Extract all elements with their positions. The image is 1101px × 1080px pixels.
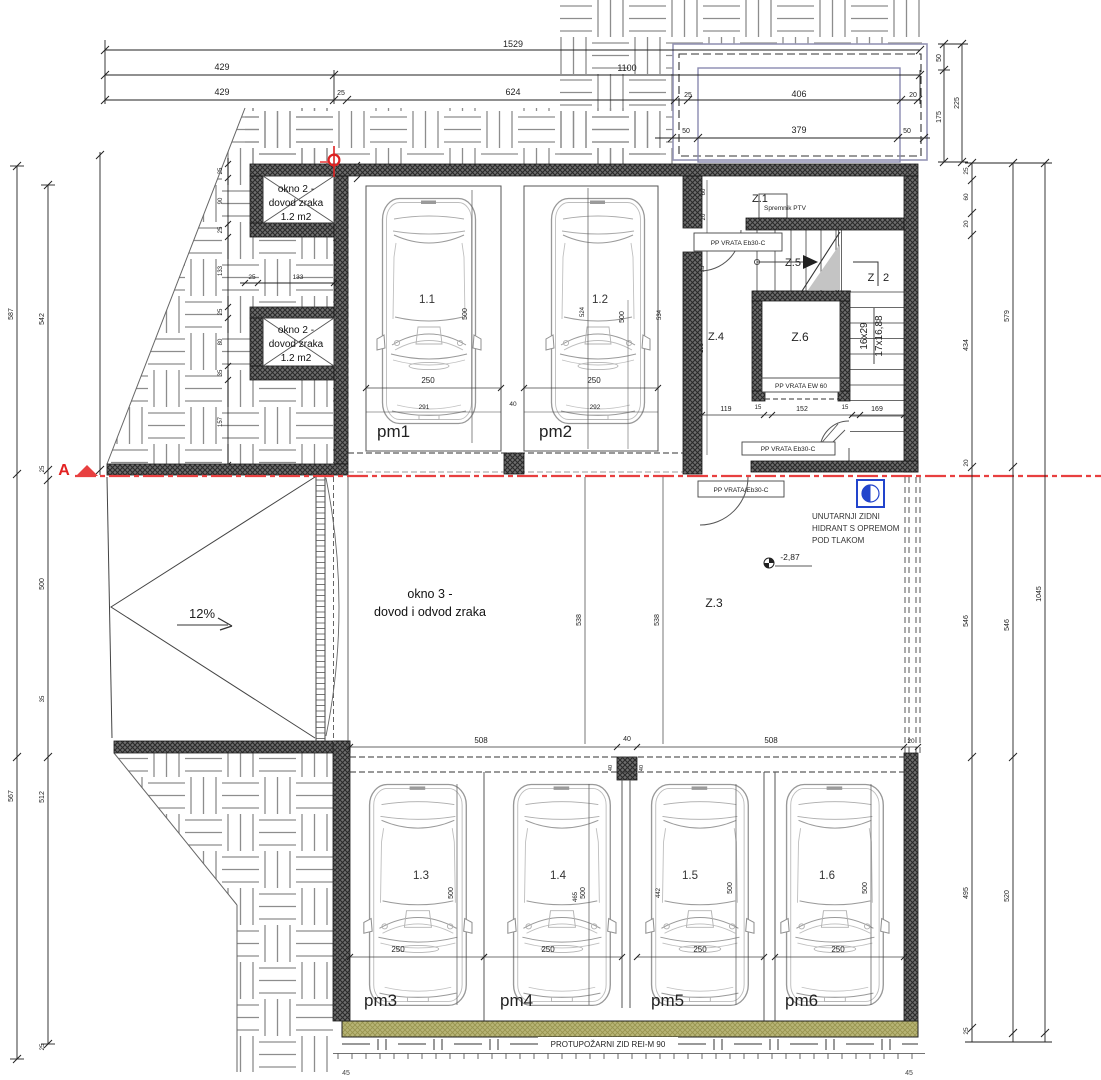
svg-text:okno 2 -: okno 2 -	[278, 184, 314, 195]
svg-text:1.3: 1.3	[413, 870, 429, 882]
svg-text:500: 500	[619, 311, 626, 323]
svg-text:250: 250	[693, 945, 707, 954]
svg-text:UNUTARNJI ZIDNI: UNUTARNJI ZIDNI	[812, 512, 880, 521]
svg-text:12%: 12%	[189, 606, 215, 621]
svg-text:500: 500	[580, 887, 587, 899]
svg-text:2: 2	[883, 272, 889, 284]
svg-text:500: 500	[862, 882, 869, 894]
svg-text:434: 434	[963, 339, 970, 351]
svg-text:60: 60	[963, 193, 970, 201]
svg-text:133: 133	[218, 265, 224, 276]
svg-text:dovod i odvod zraka: dovod i odvod zraka	[374, 605, 486, 619]
svg-text:90: 90	[218, 197, 224, 204]
svg-text:-2,87: -2,87	[780, 552, 800, 562]
svg-text:291: 291	[419, 404, 430, 411]
svg-text:Z.4: Z.4	[708, 331, 724, 343]
svg-text:Z: Z	[868, 272, 875, 284]
svg-text:25: 25	[684, 92, 692, 99]
svg-text:133: 133	[293, 274, 304, 281]
svg-text:16x29: 16x29	[859, 322, 870, 350]
svg-text:225: 225	[954, 97, 961, 109]
svg-text:Z.6: Z.6	[791, 330, 809, 344]
svg-text:25: 25	[248, 274, 256, 281]
svg-text:45: 45	[905, 1070, 913, 1077]
svg-text:379: 379	[791, 125, 806, 135]
svg-text:250: 250	[831, 945, 845, 954]
svg-text:20: 20	[963, 459, 970, 467]
svg-text:1.2 m2: 1.2 m2	[281, 353, 312, 364]
svg-text:542: 542	[39, 313, 46, 325]
svg-text:1100: 1100	[617, 63, 636, 73]
svg-text:45: 45	[342, 1070, 350, 1077]
svg-text:25: 25	[963, 1027, 970, 1035]
svg-text:1.2: 1.2	[592, 294, 608, 306]
svg-text:35: 35	[40, 695, 46, 702]
svg-text:okno 2 -: okno 2 -	[278, 325, 314, 336]
svg-text:508: 508	[474, 736, 488, 745]
svg-text:dovod zraka: dovod zraka	[269, 339, 324, 350]
svg-text:500: 500	[39, 578, 46, 590]
svg-text:25: 25	[963, 167, 970, 175]
svg-text:406: 406	[791, 89, 806, 99]
svg-text:157: 157	[218, 416, 224, 427]
svg-text:50: 50	[936, 54, 943, 62]
svg-text:1.5: 1.5	[682, 870, 698, 882]
svg-text:250: 250	[391, 945, 405, 954]
svg-text:40: 40	[608, 765, 614, 771]
svg-text:512: 512	[39, 791, 46, 803]
svg-text:500: 500	[462, 308, 469, 320]
svg-text:169: 169	[871, 406, 883, 413]
svg-text:80: 80	[218, 338, 224, 345]
svg-text:50: 50	[682, 128, 690, 135]
svg-text:534: 534	[657, 309, 663, 320]
svg-text:1045: 1045	[1036, 586, 1043, 602]
svg-text:152: 152	[796, 406, 808, 413]
svg-text:Z.1: Z.1	[752, 193, 768, 205]
svg-text:429: 429	[214, 87, 229, 97]
svg-text:17x16,88: 17x16,88	[874, 315, 885, 357]
svg-text:dovod zraka: dovod zraka	[269, 198, 324, 209]
svg-text:25: 25	[337, 90, 345, 97]
svg-text:pm1: pm1	[377, 422, 410, 441]
svg-text:25: 25	[218, 226, 224, 233]
svg-text:524: 524	[580, 306, 586, 317]
svg-text:508: 508	[764, 736, 778, 745]
svg-text:250: 250	[421, 376, 435, 385]
svg-text:567: 567	[8, 790, 15, 802]
svg-text:579: 579	[1004, 310, 1011, 322]
svg-text:500: 500	[448, 887, 455, 899]
svg-text:119: 119	[720, 406, 731, 413]
svg-text:538: 538	[576, 614, 583, 626]
svg-text:250: 250	[541, 945, 555, 954]
svg-text:538: 538	[654, 614, 661, 626]
svg-text:1.6: 1.6	[819, 870, 835, 882]
svg-text:pm3: pm3	[364, 991, 397, 1010]
svg-text:175: 175	[936, 111, 943, 123]
svg-text:POD TLAKOM: POD TLAKOM	[812, 536, 865, 545]
svg-text:520: 520	[1004, 890, 1011, 902]
svg-text:25: 25	[218, 167, 224, 174]
svg-text:20: 20	[909, 92, 917, 99]
svg-text:500: 500	[727, 882, 734, 894]
svg-text:429: 429	[214, 62, 229, 72]
svg-text:1.1: 1.1	[419, 294, 435, 306]
svg-text:25: 25	[40, 1043, 46, 1050]
svg-text:pm4: pm4	[500, 991, 533, 1010]
svg-text:624: 624	[505, 87, 520, 97]
svg-text:PP VRATA Eb30-C: PP VRATA Eb30-C	[761, 446, 816, 453]
svg-text:PP VRATA Eb30-C: PP VRATA Eb30-C	[711, 240, 766, 247]
svg-text:pm5: pm5	[651, 991, 684, 1010]
svg-text:PROTUPOŽARNI ZID REI-M 90: PROTUPOŽARNI ZID REI-M 90	[551, 1040, 666, 1049]
svg-text:587: 587	[8, 308, 15, 320]
svg-text:1.2 m2: 1.2 m2	[281, 212, 312, 223]
svg-text:35: 35	[218, 369, 224, 376]
svg-text:546: 546	[1004, 619, 1011, 631]
svg-text:Z.5: Z.5	[785, 257, 801, 269]
svg-text:250: 250	[587, 376, 601, 385]
svg-text:40: 40	[509, 401, 517, 408]
svg-text:A: A	[58, 462, 70, 479]
svg-text:465: 465	[573, 891, 579, 902]
svg-text:1529: 1529	[503, 39, 523, 49]
svg-text:292: 292	[590, 404, 601, 411]
svg-text:442: 442	[656, 887, 662, 898]
svg-text:25: 25	[218, 308, 224, 315]
svg-text:40: 40	[623, 736, 631, 743]
svg-text:pm6: pm6	[785, 991, 818, 1010]
svg-text:Z.3: Z.3	[705, 596, 723, 610]
svg-text:40: 40	[639, 765, 645, 771]
svg-text:495: 495	[963, 887, 970, 899]
svg-text:25: 25	[40, 465, 46, 472]
svg-text:546: 546	[963, 615, 970, 627]
svg-text:PP VRATA EW 60: PP VRATA EW 60	[775, 383, 827, 390]
svg-text:50: 50	[903, 128, 911, 135]
svg-text:15: 15	[755, 405, 762, 411]
svg-text:PP VRATA/Eb30-C: PP VRATA/Eb30-C	[714, 487, 769, 494]
svg-text:Spremnik PTV: Spremnik PTV	[764, 205, 807, 212]
svg-text:20: 20	[963, 220, 970, 228]
svg-text:1.4: 1.4	[550, 870, 567, 882]
svg-text:pm2: pm2	[539, 422, 572, 441]
svg-text:okno 3 -: okno 3 -	[407, 587, 452, 601]
svg-text:20: 20	[907, 738, 915, 745]
svg-text:HIDRANT S OPREMOM: HIDRANT S OPREMOM	[812, 524, 900, 533]
svg-text:15: 15	[842, 405, 849, 411]
